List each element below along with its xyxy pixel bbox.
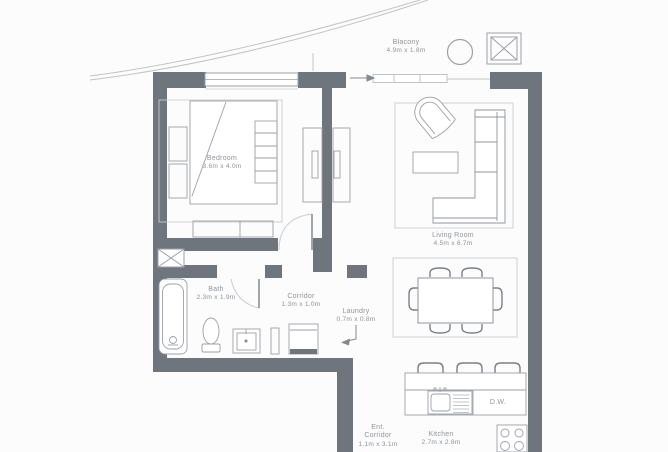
balcony-planter [487, 33, 521, 64]
dining-table [418, 278, 493, 323]
tv-unit-living [333, 128, 350, 202]
label-living-room: Living Room 4.5m x 6.7m [432, 232, 474, 248]
label-laundry: Laundry 0.7m x 0.8m [336, 308, 375, 324]
bathtub [159, 279, 187, 354]
coffee-table [413, 152, 458, 173]
balcony-table [448, 40, 473, 65]
label-dishwasher: D.W. [490, 399, 506, 407]
bedroom-furniture [159, 100, 350, 237]
bar-stools [418, 363, 520, 374]
nightstand [169, 164, 187, 198]
floor-plan-drawing [0, 0, 668, 452]
label-bath: Bath 2.3m x 1.9m [196, 286, 235, 302]
living-room-furniture [395, 91, 513, 228]
label-ent-corridor: Ent. Corridor 1.1m x 3.1m [358, 424, 398, 448]
bedroom-window [205, 73, 298, 89]
bed [190, 101, 277, 204]
floor-plan: Blacony 4.9m x 1.8m Bedroom 3.6m x 4.0m … [0, 0, 668, 452]
label-balcony: Blacony 4.9m x 1.8m [386, 39, 425, 55]
dining-set [393, 258, 517, 337]
door-swing-arrow [350, 75, 374, 81]
laundry [271, 324, 318, 354]
laundry-arrow [341, 325, 356, 346]
bedroom-door [279, 214, 312, 250]
label-bedroom: Bedroom 3.6m x 4.0m [202, 155, 241, 171]
balcony-curve [90, 0, 428, 80]
bedroom-dresser [193, 221, 273, 237]
label-kitchen: Kitchen 2.7m x 2.8m [421, 431, 460, 447]
nightstand [169, 127, 187, 161]
shaft [158, 249, 184, 267]
balcony-door [373, 75, 490, 83]
tv-unit-bedroom [303, 128, 322, 202]
label-corridor: Corridor 1.3m x 1.0m [281, 293, 320, 309]
stove [497, 425, 527, 452]
laundry-door-leaf [271, 328, 279, 354]
armchair [409, 91, 457, 140]
toilet [203, 318, 219, 344]
